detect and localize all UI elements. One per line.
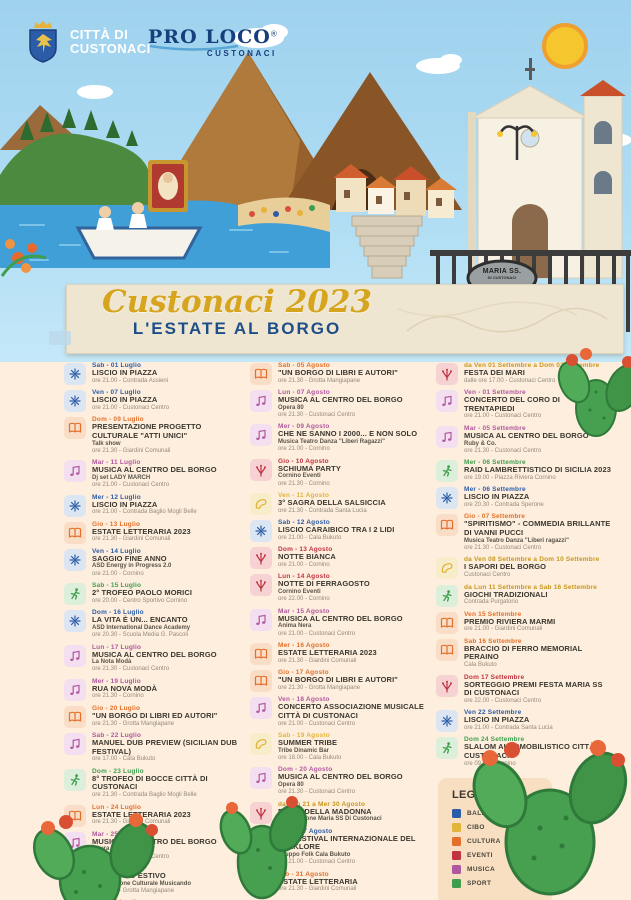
- event-item: da Ven 08 Settembre a Dom 10 Settembre I…: [436, 556, 612, 579]
- event-title: LISCIO CARAIBICO TRA I 2 LIDI: [278, 526, 394, 535]
- cultura-icon: [64, 522, 86, 544]
- cultura-icon: [436, 612, 458, 634]
- event-subtitle: Cornino Eventi: [278, 589, 370, 596]
- event-subtitle: Musica Teatro Danza "Liberi ragazzi": [464, 538, 612, 545]
- musica-icon: [250, 424, 272, 446]
- event-item: Dom 17 Settembre SORTEGGIO PREMI FESTA M…: [436, 674, 612, 706]
- events-column-luglio: Sab - 01 Luglio LISCIO IN PIAZZA ore 21.…: [64, 362, 240, 900]
- event-item: Mar - 05 Settembre MUSICA AL CENTRO DEL …: [436, 425, 612, 455]
- event-title: FESTA DEI MARI: [464, 369, 600, 378]
- event-title: CONCERTO ESTIVO: [92, 872, 191, 881]
- event-title: SUMMER TRIBE: [278, 739, 341, 748]
- legend-color-swatch: [452, 823, 461, 832]
- legend-item: SPORT: [452, 879, 538, 888]
- event-subtitle: Altura: [92, 846, 217, 853]
- cultura-icon: [64, 706, 86, 728]
- event-item: Sab - 01 Luglio LISCIO IN PIAZZA ore 21.…: [64, 362, 240, 385]
- event-detail: ore 21.30 - Custonaci Centro: [278, 412, 403, 420]
- event-title: MUSICA AL CENTRO DEL BORGO: [92, 466, 217, 475]
- event-title: "UN BORGO DI LIBRI E AUTORI": [278, 369, 398, 378]
- event-title: "UN BORGO DI LIBRI ED AUTORI": [92, 712, 217, 721]
- municipality-logo: CITTÀ DI CUSTONACI: [24, 20, 151, 64]
- event-item: Ven - 14 Luglio SAGGIO FINE ANNO ASD Ene…: [64, 548, 240, 578]
- event-item: Mer - 06 Settembre RAID LAMBRETTISTICO D…: [436, 459, 612, 482]
- event-detail: ore 21.30 - Custonaci Centro: [278, 789, 403, 797]
- eventi-icon: [250, 547, 272, 569]
- event-item: Sab 16 Settembre BRACCIO DI FERRO MEMORI…: [436, 638, 612, 670]
- eventi-icon: [436, 675, 458, 697]
- event-detail: ore 21.30 - Grotta Mangiapane: [92, 888, 191, 896]
- event-detail: Cala Bukuto: [464, 662, 612, 670]
- event-title: LISCIO IN PIAZZA: [92, 501, 197, 510]
- ballo-icon: [436, 710, 458, 732]
- partner-logo: [49, 331, 71, 345]
- event-item: Ven 22 Settembre LISCIO IN PIAZZA ore 21…: [436, 709, 612, 732]
- event-item: Mer - 26 Luglio CONCERTO ESTIVO Associaz…: [64, 865, 240, 895]
- proloco-subname: CUSTONACI: [148, 49, 277, 58]
- event-title: NOTTE DI FERRAGOSTO: [278, 580, 370, 589]
- event-title: PREMIO RIVIERA MARMI: [464, 618, 555, 627]
- event-detail: ore 18.00 - Cala Bukuto: [278, 755, 341, 763]
- event-detail: ore 21.00 - Custonaci Centro: [278, 859, 426, 867]
- cultura-icon: [250, 363, 272, 385]
- event-detail: ore 21.30 - Grotta Mangiapane: [278, 685, 398, 693]
- event-detail: ore 21.30 - Giardini Comunali: [92, 536, 191, 544]
- ballo-icon: [436, 487, 458, 509]
- event-title: SLALOM AUTOMOBILISTICO CITTÀ DI CUSTONAC…: [464, 743, 612, 760]
- event-item: Ven - 07 Luglio LISCIO IN PIAZZA ore 21.…: [64, 389, 240, 412]
- event-item: Sab - 12 Agosto LISCIO CARAIBICO TRA I 2…: [250, 519, 426, 542]
- musica-icon: [436, 390, 458, 412]
- eventi-icon: [250, 802, 272, 824]
- event-detail: ore 21.00 - Cornino: [278, 446, 417, 454]
- event-subtitle: ASD Energy in Progress 2.0: [92, 563, 171, 570]
- event-item: Dom - 13 Agosto NOTTE BIANCA ore 21.00 -…: [250, 546, 426, 569]
- legend-color-swatch: [452, 837, 461, 846]
- church-plaque-title: MARIA SS.: [470, 268, 534, 275]
- event-detail: ore 22.00 - Cornino: [278, 596, 370, 604]
- event-detail: ore 21.00 - Contrada Santa Lucia: [464, 725, 553, 733]
- cibo-icon: [436, 557, 458, 579]
- ballo-icon: [250, 520, 272, 542]
- event-title: RAID LAMBRETTISTICO DI SICILIA 2023: [464, 466, 611, 475]
- event-title: ESTATE LETTERARIA 2023: [92, 528, 191, 537]
- event-title: CHE NE SANNO I 2000... E NON SOLO: [278, 430, 417, 439]
- event-title: SORTEGGIO PREMI FESTA MARIA SS DI CUSTON…: [464, 681, 612, 698]
- legend-color-swatch: [452, 851, 461, 860]
- event-title: ESTATE LETTERARIA: [278, 878, 358, 887]
- event-title: RUA NOVA MODÀ: [92, 685, 157, 694]
- event-detail: ore 09.00 - Cornino: [464, 761, 612, 769]
- event-detail: ore 21.00 - Cornino: [278, 562, 336, 570]
- event-item: Dom - 20 Agosto MUSICA AL CENTRO DEL BOR…: [250, 766, 426, 796]
- event-detail: ore 21.30 - Contrada Baglio Mogli Belle: [92, 792, 240, 800]
- event-item: Mar - 11 Luglio MUSICA AL CENTRO DEL BOR…: [64, 459, 240, 489]
- legend-box: LEGENDA BALLOCIBOCULTURAEVENTIMUSICASPOR…: [438, 778, 552, 900]
- event-detail: ore 20.30 - Scuola Media G. Pascoli: [92, 632, 190, 640]
- sport-icon: [436, 460, 458, 482]
- event-title: LISCIO IN PIAZZA: [464, 493, 544, 502]
- legend-item: BALLO: [452, 809, 538, 818]
- legend-item: CULTURA: [452, 837, 538, 846]
- event-title: MUSICA AL CENTRO DEL BORGO: [92, 651, 217, 660]
- event-detail: Custonaci Centro: [464, 572, 600, 580]
- musica-icon: [64, 679, 86, 701]
- event-item: Gio - 31 Agosto ESTATE LETTERARIA ore 21…: [250, 871, 426, 894]
- event-detail: ore 21.00 - Custonaci Centro: [278, 631, 403, 639]
- ballo-icon: [64, 610, 86, 632]
- cultura-icon: [250, 872, 272, 894]
- event-detail: ore 21.00 - Cornino: [92, 571, 171, 579]
- event-detail: ore 21.00 - Custonaci Centro: [92, 854, 217, 862]
- legend-label: EVENTI: [467, 852, 493, 859]
- musica-icon: [64, 832, 86, 854]
- event-title: 2° TROFEO PAOLO MORICI: [92, 589, 192, 598]
- event-title: LISCIO IN PIAZZA: [92, 396, 169, 405]
- event-title: BRACCIO DI FERRO MEMORIAL PERAINO: [464, 645, 612, 662]
- event-detail: ore 21.00 - Contrada Baglio Mogli Belle: [92, 509, 197, 517]
- event-detail: ore 22.00 - Custonaci Centro: [464, 698, 612, 706]
- cultura-icon: [436, 639, 458, 661]
- stairs: [352, 216, 422, 278]
- cultura-icon: [436, 514, 458, 536]
- event-title: 3° SAGRA DELLA SALSICCIA: [278, 499, 386, 508]
- event-detail: ore 21.30 - Giardini Comunali: [92, 819, 191, 827]
- sport-icon: [436, 737, 458, 759]
- events-column-agosto: Sab - 05 Agosto "UN BORGO DI LIBRI E AUT…: [250, 362, 426, 898]
- cultura-icon: [64, 417, 86, 439]
- event-detail: ore 21.30 - Giardini Comunali: [278, 886, 358, 894]
- event-detail: ore 21.30 - Custonaci Centro: [464, 448, 589, 456]
- event-detail: ore 21.30 - Custonaci Centro: [464, 545, 612, 553]
- event-item: Sab - 05 Agosto "UN BORGO DI LIBRI E AUT…: [250, 362, 426, 385]
- event-detail: ore 21.30 - Custonaci Centro: [92, 666, 217, 674]
- event-title: LISCIO IN PIAZZA: [464, 716, 553, 725]
- event-title: GIOCHI TRADIZIONALI: [464, 591, 597, 600]
- event-detail: ore 21.30 - Cornino: [92, 693, 157, 701]
- event-item: Ven - 18 Agosto CONCERTO ASSOCIAZIONE MU…: [250, 696, 426, 728]
- event-title: LA VITA È UN... ENCANTO: [92, 616, 190, 625]
- event-item: Lun - 07 Agosto MUSICA AL CENTRO DEL BOR…: [250, 389, 426, 419]
- ballo-icon: [250, 829, 272, 851]
- event-item: Dom - 27 Agosto 31° FESTIVAL INTERNAZION…: [250, 828, 426, 867]
- event-detail: ore 21.00 - Custonaci Centro: [278, 721, 426, 729]
- legend-label: MUSICA: [467, 866, 495, 873]
- event-subtitle: Talk show: [92, 441, 240, 448]
- event-subtitle: Associazione Culturale Musicando: [92, 881, 191, 888]
- musica-icon: [64, 645, 86, 667]
- event-item: Gio - 13 Luglio ESTATE LETTERARIA 2023 o…: [64, 521, 240, 544]
- event-title: MUSICA AL CENTRO DEL BORGO: [464, 432, 589, 441]
- event-item: Mar - 25 Luglio MUSICA AL CENTRO DEL BOR…: [64, 831, 240, 861]
- event-title: NOTTE BIANCA: [278, 553, 336, 562]
- event-item: da Ven 01 Settembre a Dom 03 Settembre F…: [436, 362, 612, 385]
- event-detail: ore 21.30 - Contrada Santa Lucia: [278, 508, 386, 516]
- event-item: Gio - 20 Luglio "UN BORGO DI LIBRI ED AU…: [64, 705, 240, 728]
- event-title: PRESENTAZIONE PROGETTO CULTURALE "ATTI U…: [92, 423, 240, 440]
- event-detail: ore 21.00 - Custonaci Centro: [92, 405, 169, 413]
- event-detail: ore 21.30 - Grotta Mangiapane: [92, 721, 217, 729]
- ballo-icon: [64, 363, 86, 385]
- event-detail: ore 21.30 - Giardini Comunali: [92, 448, 240, 456]
- event-item: Ven - 11 Agosto 3° SAGRA DELLA SALSICCIA…: [250, 492, 426, 515]
- event-detail: ore 21.00 - Custonaci Centro: [92, 482, 217, 490]
- event-item: Lun - 14 Agosto NOTTE DI FERRAGOSTO Corn…: [250, 573, 426, 603]
- event-subtitle: Musica Teatro Danza "Liberi Ragazzi": [278, 439, 417, 446]
- event-subtitle: Tribe Dinamic Bar: [278, 748, 341, 755]
- event-poster: MARIA SS. DI CUSTONACI CITTÀ DI CUSTONAC…: [0, 0, 631, 900]
- event-subtitle: Opera 80: [278, 405, 403, 412]
- event-item: Sab - 19 Agosto SUMMER TRIBE Tribe Dinam…: [250, 732, 426, 762]
- proloco-logo: PRO LOCO® CUSTONACI: [148, 26, 277, 58]
- event-item: Lun - 24 Luglio ESTATE LETTERARIA 2023 o…: [64, 804, 240, 827]
- event-subtitle: Opera 80: [278, 782, 403, 789]
- legend-items: BALLOCIBOCULTURAEVENTIMUSICASPORT: [452, 809, 538, 888]
- municipality-name: CITTÀ DI CUSTONACI: [70, 28, 151, 55]
- musica-icon: [64, 733, 86, 755]
- event-detail: ore 21.00 - Cala Bukuto: [278, 535, 394, 543]
- event-title: MUSICA AL CENTRO DEL BORGO: [92, 838, 217, 847]
- church-plaque-sub: DI CUSTONACI: [470, 275, 534, 280]
- sport-icon: [64, 769, 86, 791]
- sport-icon: [436, 585, 458, 607]
- legend-item: EVENTI: [452, 851, 538, 860]
- cultura-icon: [64, 805, 86, 827]
- event-item: Lun - 17 Luglio MUSICA AL CENTRO DEL BOR…: [64, 644, 240, 674]
- event-item: Gio - 07 Settembre "SPIRITISMO" - COMMED…: [436, 513, 612, 552]
- eventi-icon: [250, 574, 272, 596]
- event-subtitle: Dj set LADY MARCH: [92, 475, 217, 482]
- musica-icon: [64, 460, 86, 482]
- sun-icon: [544, 25, 586, 67]
- event-item: Sab - 22 Luglio MANUEL DUB PREVIEW (SICI…: [64, 732, 240, 764]
- poster-subtitle: L'ESTATE AL BORGO: [87, 319, 387, 339]
- event-item: da Lun 11 Settembre a Sab 16 Settembre G…: [436, 584, 612, 607]
- event-title: 31° FESTIVAL INTERNAZIONALE DEL FOLKLORE: [278, 835, 426, 852]
- event-item: Dom 24 Settembre SLALOM AUTOMOBILISTICO …: [436, 736, 612, 768]
- event-item: Dom - 09 Luglio PRESENTAZIONE PROGETTO C…: [64, 416, 240, 455]
- musica-icon: [436, 426, 458, 448]
- legend-label: CIBO: [467, 824, 485, 831]
- eventi-icon: [436, 363, 458, 385]
- event-detail: ore 21.30 - Giardini Comunali: [278, 658, 377, 666]
- legend-item: CIBO: [452, 823, 538, 832]
- event-title: SCHIUMA PARTY: [278, 465, 341, 474]
- title-banner: Custonaci 2023 L'ESTATE AL BORGO: [66, 284, 624, 354]
- ballo-icon: [64, 390, 86, 412]
- event-item: Mer - 06 Settembre LISCIO IN PIAZZA ore …: [436, 486, 612, 509]
- custonaci-crest-icon: [24, 20, 62, 64]
- event-detail: ore 21.30 - Grotta Mangiapane: [278, 378, 398, 386]
- event-item: Mar - 15 Agosto MUSICA AL CENTRO DEL BOR…: [250, 608, 426, 638]
- legend-title: LEGENDA: [452, 789, 538, 801]
- ballo-icon: [64, 549, 86, 571]
- event-detail: ore 21.00 - Contrada Assieni: [92, 378, 168, 386]
- musica-icon: [250, 767, 272, 789]
- event-title: CONCERTO DEL CORO DI TRENTAPIEDI: [464, 396, 612, 413]
- event-detail: Contrada Purgatorio: [464, 599, 597, 607]
- event-item: Gio - 10 Agosto SCHIUMA PARTY Cornino Ev…: [250, 458, 426, 488]
- event-item: Mer - 19 Luglio RUA NOVA MODÀ ore 21.30 …: [64, 678, 240, 701]
- event-item: Ven - 01 Settembre CONCERTO DEL CORO DI …: [436, 389, 612, 421]
- legend-label: BALLO: [467, 810, 491, 817]
- event-title: MUSICA AL CENTRO DEL BORGO: [278, 773, 403, 782]
- event-title: MANUEL DUB PREVIEW (SICILIAN DUB FESTIVA…: [92, 739, 240, 756]
- event-subtitle: Anima Nera: [278, 623, 403, 630]
- event-subtitle: La Nota Modà: [92, 659, 217, 666]
- eventi-icon: [250, 459, 272, 481]
- event-title: MUSICA AL CENTRO DEL BORGO: [278, 396, 403, 405]
- event-title: ESTATE LETTERARIA 2023: [92, 811, 191, 820]
- event-title: FESTA DELLA MADONNA: [278, 808, 382, 817]
- event-subtitle: Ruby & Co.: [464, 441, 589, 448]
- cibo-icon: [250, 733, 272, 755]
- event-detail: ore 21.30 - Cornino: [278, 481, 341, 489]
- event-title: "SPIRITISMO" - COMMEDIA BRILLANTE DI VAN…: [464, 520, 612, 537]
- event-item: Dom - 23 Luglio 8° TROFEO DI BOCCE CITTÀ…: [64, 768, 240, 800]
- event-item: Gio - 17 Agosto "UN BORGO DI LIBRI E AUT…: [250, 669, 426, 692]
- event-item: Dom - 16 Luglio LA VITA È UN... ENCANTO …: [64, 609, 240, 639]
- event-item: Mer - 12 Luglio LISCIO IN PIAZZA ore 21.…: [64, 494, 240, 517]
- cibo-icon: [250, 493, 272, 515]
- event-item: Ven 15 Settembre PREMIO RIVIERA MARMI or…: [436, 611, 612, 634]
- legend-color-swatch: [452, 865, 461, 874]
- event-detail: ore 21.00 - Giardini Comunali: [464, 626, 555, 634]
- event-subtitle: Associazione Maria SS Di Custonaci: [278, 816, 382, 823]
- sport-icon: [64, 583, 86, 605]
- event-title: "UN BORGO DI LIBRI E AUTORI": [278, 676, 398, 685]
- legend-item: MUSICA: [452, 865, 538, 874]
- event-subtitle: Cornino Eventi: [278, 473, 341, 480]
- event-title: 8° TROFEO DI BOCCE CITTÀ DI CUSTONACI: [92, 775, 240, 792]
- event-title: I SAPORI DEL BORGO: [464, 563, 600, 572]
- proloco-name: PRO LOCO: [148, 26, 271, 48]
- event-title: ESTATE LETTERARIA 2023: [278, 649, 377, 658]
- event-detail: ore 20.00 - Centro Sportivo Cornino: [92, 598, 192, 606]
- legend-label: CULTURA: [467, 838, 501, 845]
- poster-title: Custonaci 2023: [87, 287, 387, 318]
- event-detail: ore 17.00 - Cala Bukuto: [92, 756, 240, 764]
- musica-icon: [250, 697, 272, 719]
- banner-map-texture: [397, 291, 617, 347]
- event-title: LISCIO IN PIAZZA: [92, 369, 168, 378]
- event-subtitle: Gruppo Folk Cala Bukuto: [278, 852, 426, 859]
- event-item: Mer - 16 Agosto ESTATE LETTERARIA 2023 o…: [250, 642, 426, 665]
- event-detail: dalle ore 17.00 - Custonaci Centro: [464, 378, 600, 386]
- event-title: SAGGIO FINE ANNO: [92, 555, 171, 564]
- event-item: da Lun 21 a Mer 30 Agosto FESTA DELLA MA…: [250, 801, 426, 824]
- registered-mark: ®: [271, 30, 277, 39]
- event-detail: ore 20.30 - Contrada Sperone: [464, 502, 544, 510]
- event-title: CONCERTO ASSOCIAZIONE MUSICALE CITTÀ DI …: [278, 703, 426, 720]
- legend-label: SPORT: [467, 880, 491, 887]
- events-column-settembre: da Ven 01 Settembre a Dom 03 Settembre F…: [436, 362, 612, 900]
- musica-icon: [250, 390, 272, 412]
- cultura-icon: [250, 643, 272, 665]
- event-item: Sab - 15 Luglio 2° TROFEO PAOLO MORICI o…: [64, 582, 240, 605]
- cultura-icon: [250, 670, 272, 692]
- event-detail: ore 19.00 - Piazza Riviera Cornino: [464, 475, 611, 483]
- musica-icon: [64, 866, 86, 888]
- sanctuary-church-icon: [468, 58, 626, 278]
- musica-icon: [250, 609, 272, 631]
- legend-color-swatch: [452, 879, 461, 888]
- event-subtitle: ASD International Dance Academy: [92, 625, 190, 632]
- event-detail: ore 21.00 - Custonaci Centro: [464, 413, 612, 421]
- ballo-icon: [64, 495, 86, 517]
- legend-color-swatch: [452, 809, 461, 818]
- event-title: MUSICA AL CENTRO DEL BORGO: [278, 615, 403, 624]
- event-item: Mer - 09 Agosto CHE NE SANNO I 2000... E…: [250, 423, 426, 453]
